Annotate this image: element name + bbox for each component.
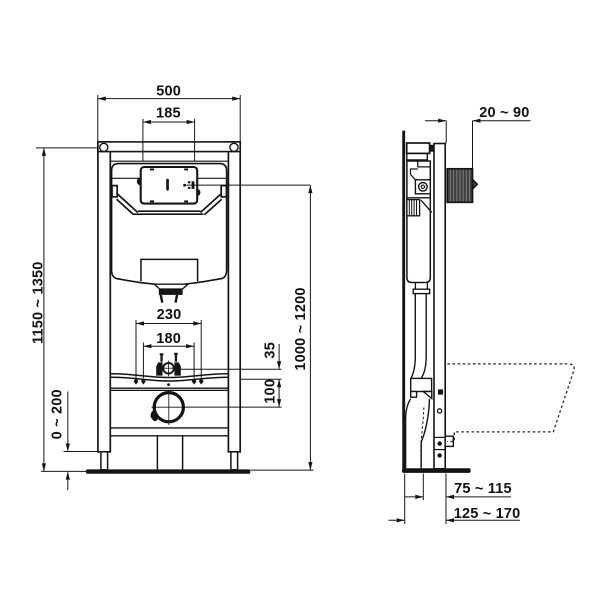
svg-text:0 ~ 200: 0 ~ 200 [50,389,66,439]
svg-text:1000 ~ 1200: 1000 ~ 1200 [293,287,309,370]
svg-text:230: 230 [157,307,182,323]
svg-text:100: 100 [262,379,278,404]
svg-text:180: 180 [156,331,181,347]
svg-text:500: 500 [156,84,181,100]
svg-text:35: 35 [262,342,278,359]
svg-text:185: 185 [156,105,181,121]
svg-text:75 ~ 115: 75 ~ 115 [454,481,512,497]
svg-text:20 ~ 90: 20 ~ 90 [479,105,529,121]
svg-text:125 ~ 170: 125 ~ 170 [454,506,521,522]
svg-text:1150 ~ 1350: 1150 ~ 1350 [30,261,46,343]
